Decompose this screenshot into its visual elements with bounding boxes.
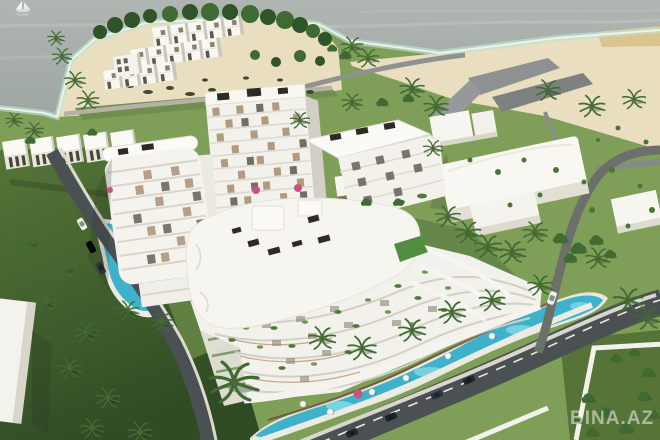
render-canvas: BINA.AZ: [0, 0, 660, 440]
aerial-render: BINA.AZ: [0, 0, 660, 440]
townhouse: [170, 23, 191, 44]
townhouse: [201, 37, 222, 58]
townhouse: [183, 40, 204, 61]
townhouse: [166, 42, 187, 63]
bougainvillea: [294, 184, 302, 192]
townhouse: [156, 61, 177, 82]
townhouse: [152, 25, 173, 46]
townhouse: [139, 63, 160, 84]
bina-az-watermark: BINA.AZ: [570, 408, 654, 429]
townhouse: [188, 20, 209, 41]
bougainvillea: [107, 187, 113, 193]
roof-penthouse: [252, 206, 284, 230]
bougainvillea: [252, 186, 260, 194]
flower-bed: [354, 390, 363, 399]
small-apartment-block: [113, 53, 143, 77]
townhouse: [205, 18, 226, 39]
